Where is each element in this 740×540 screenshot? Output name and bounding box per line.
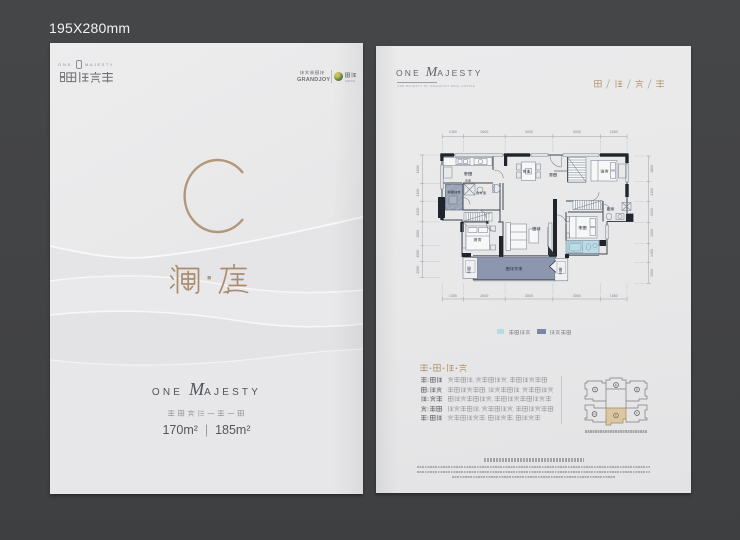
svg-text:1000: 1000 [416, 266, 420, 274]
svg-text:2600: 2600 [480, 130, 488, 134]
svg-text:3000: 3000 [525, 130, 533, 134]
svg-text:1650: 1650 [610, 294, 618, 298]
svg-text:1100: 1100 [650, 188, 654, 196]
svg-text:A: A [594, 388, 596, 392]
svg-text:3000: 3000 [573, 294, 581, 298]
svg-text:1500: 1500 [650, 229, 654, 237]
svg-text:1650: 1650 [610, 130, 618, 134]
svg-text:1500: 1500 [416, 230, 420, 238]
svg-text:1000: 1000 [416, 250, 420, 258]
svg-text:1300: 1300 [416, 208, 420, 216]
svg-text:2600: 2600 [480, 294, 488, 298]
svg-text:3300: 3300 [650, 208, 654, 216]
svg-text:1350: 1350 [449, 294, 457, 298]
svg-text:1500: 1500 [650, 269, 654, 277]
svg-text:3000: 3000 [573, 130, 581, 134]
svg-text:1800: 1800 [650, 165, 654, 173]
svg-text:3000: 3000 [525, 294, 533, 298]
svg-text:1100: 1100 [416, 189, 420, 197]
svg-text:1400: 1400 [650, 249, 654, 257]
svg-text:B: B [636, 388, 638, 392]
svg-text:F: F [636, 411, 638, 415]
svg-text:1350: 1350 [449, 130, 457, 134]
svg-text:E: E [615, 383, 617, 387]
svg-text:1800: 1800 [416, 165, 420, 173]
